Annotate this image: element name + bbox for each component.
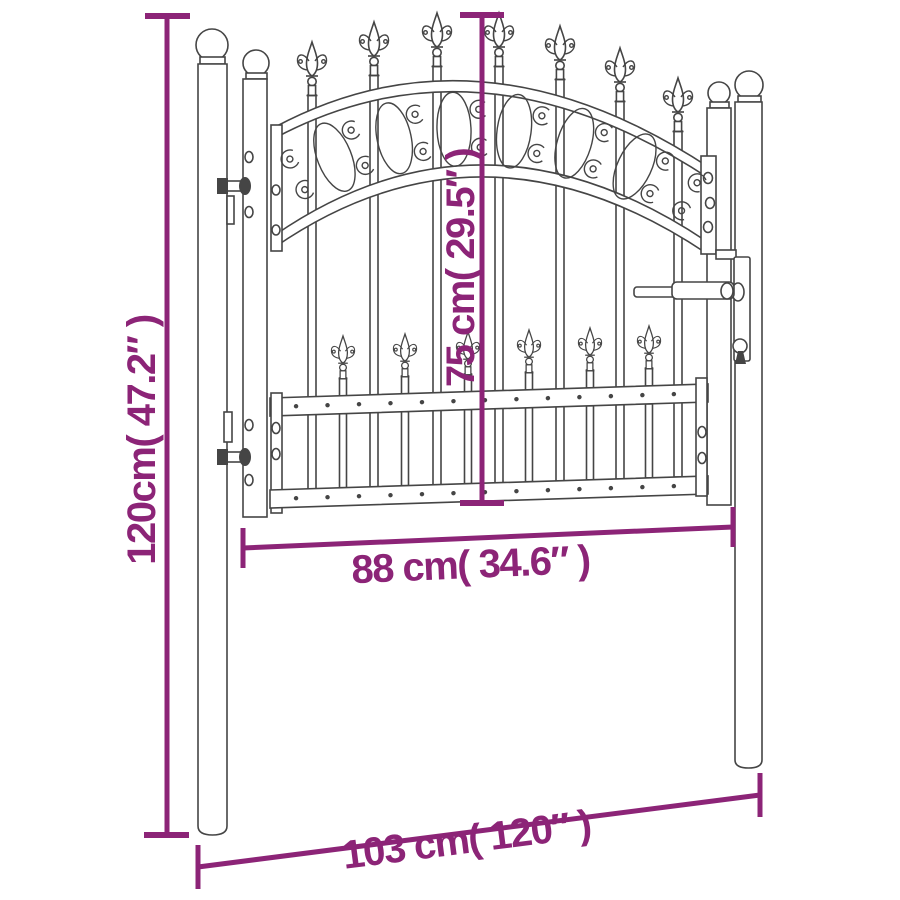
overall-height-label: 120cm( 47.2″ ) bbox=[120, 315, 164, 565]
gate-height-label: 75 cm( 29.5″ ) bbox=[439, 149, 483, 387]
gate-left-ball-cap bbox=[243, 50, 269, 76]
gate-technical-drawing: 120cm( 47.2″ ) 75 cm( 29.5″ ) 88 cm( 34.… bbox=[0, 0, 900, 900]
dim-gate-width: 88 cm( 34.6″ ) bbox=[243, 507, 733, 592]
dim-overall-height: 120cm( 47.2″ ) bbox=[120, 16, 190, 835]
left-fence-post bbox=[196, 29, 234, 835]
gate-left-stile bbox=[243, 50, 269, 517]
keyhole bbox=[733, 339, 747, 353]
gate-width-label: 88 cm( 34.6″ ) bbox=[350, 538, 590, 592]
arch-top-rail bbox=[275, 81, 710, 179]
dim-overall-width: 103 cm( 120″ ) bbox=[198, 773, 760, 889]
arch-bottom-rail bbox=[275, 165, 706, 253]
hinge-top bbox=[217, 177, 251, 195]
arch-band bbox=[271, 81, 716, 254]
hinge-bottom bbox=[217, 448, 251, 466]
diagram-canvas: 120cm( 47.2″ ) 75 cm( 29.5″ ) 88 cm( 34.… bbox=[0, 0, 900, 900]
gate-right-ball-cap bbox=[708, 82, 730, 104]
overall-width-label: 103 cm( 120″ ) bbox=[340, 802, 593, 877]
right-post-ball-cap bbox=[735, 71, 763, 99]
right-fence-post bbox=[735, 71, 763, 768]
